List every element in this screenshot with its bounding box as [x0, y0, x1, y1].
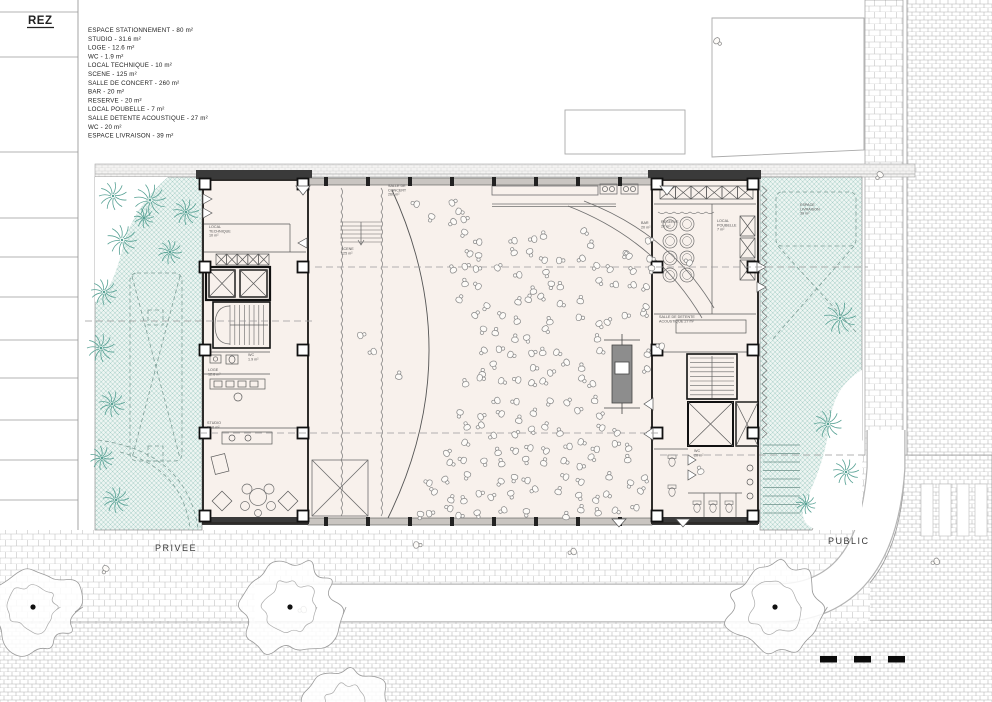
wall-tick — [534, 177, 538, 186]
architectural-ground-floor-plan: REZ ESPACE STATIONNEMENT - 80 m²STUDIO -… — [0, 0, 992, 702]
column — [652, 511, 663, 522]
wall-tick — [450, 177, 454, 186]
wall-tick — [366, 177, 370, 186]
column — [298, 511, 309, 522]
private-zone-label: PRIVEE — [155, 543, 197, 553]
legend-item: SALLE DETENTE ACOUSTIQUE - 27 m² — [88, 115, 208, 122]
public-zone-label: PUBLIC — [828, 536, 870, 546]
column — [748, 179, 759, 190]
legend-item: STUDIO - 31.6 m² — [88, 36, 141, 43]
legend-item: RESERVE - 20 m² — [88, 97, 142, 104]
room-label: SALLE DE DETENTEACOUSTIQUE 27 m² — [659, 315, 695, 323]
column — [200, 511, 211, 522]
legend-item: BAR - 20 m² — [88, 89, 124, 96]
column — [748, 428, 759, 439]
column — [200, 345, 211, 356]
legend-item: WC - 20 m² — [88, 124, 122, 131]
wall-tick — [366, 517, 370, 526]
wall-tick — [576, 517, 580, 526]
wall-tick — [492, 177, 496, 186]
legend-item: LOCAL POUBELLE - 7 m² — [88, 106, 165, 113]
legend-item: ESPACE STATIONNEMENT - 80 m² — [88, 27, 193, 34]
column — [200, 262, 211, 273]
road-bottom — [0, 621, 992, 702]
wall-tick — [492, 517, 496, 526]
column — [200, 179, 211, 190]
legend-item: LOGE - 12.6 m² — [88, 45, 134, 52]
scale-bar-dash — [888, 656, 905, 663]
column — [298, 345, 309, 356]
wall-tick — [576, 177, 580, 186]
column — [748, 345, 759, 356]
scale-bar-dash — [820, 656, 837, 663]
column — [298, 262, 309, 273]
room-label: SCENE125 m² — [341, 247, 354, 255]
wall-tick — [534, 517, 538, 526]
legend-item: WC - 1.9 m² — [88, 53, 124, 60]
wall-tick — [450, 517, 454, 526]
street-right — [907, 0, 992, 462]
legend-item: ESPACE LIVRAISON - 39 m² — [88, 133, 174, 140]
legend-item: LOCAL TECHNIQUE - 10 m² — [88, 62, 172, 69]
scale-bar-dash — [854, 656, 871, 663]
room-label: STUDIO31.6 m² — [207, 421, 221, 429]
column — [748, 511, 759, 522]
legend-item: SALLE DE CONCERT - 260 m² — [88, 80, 179, 87]
wall-tick — [618, 177, 622, 186]
wall-tick — [324, 177, 328, 186]
column — [652, 179, 663, 190]
legend-title: REZ — [28, 15, 53, 27]
sidewalk-right-strip — [865, 0, 903, 462]
wall-tick — [408, 517, 412, 526]
scale-bar — [820, 656, 905, 663]
wall-tick — [408, 177, 412, 186]
legend-item: SCENE - 125 m² — [88, 71, 137, 78]
wall-tick — [324, 517, 328, 526]
